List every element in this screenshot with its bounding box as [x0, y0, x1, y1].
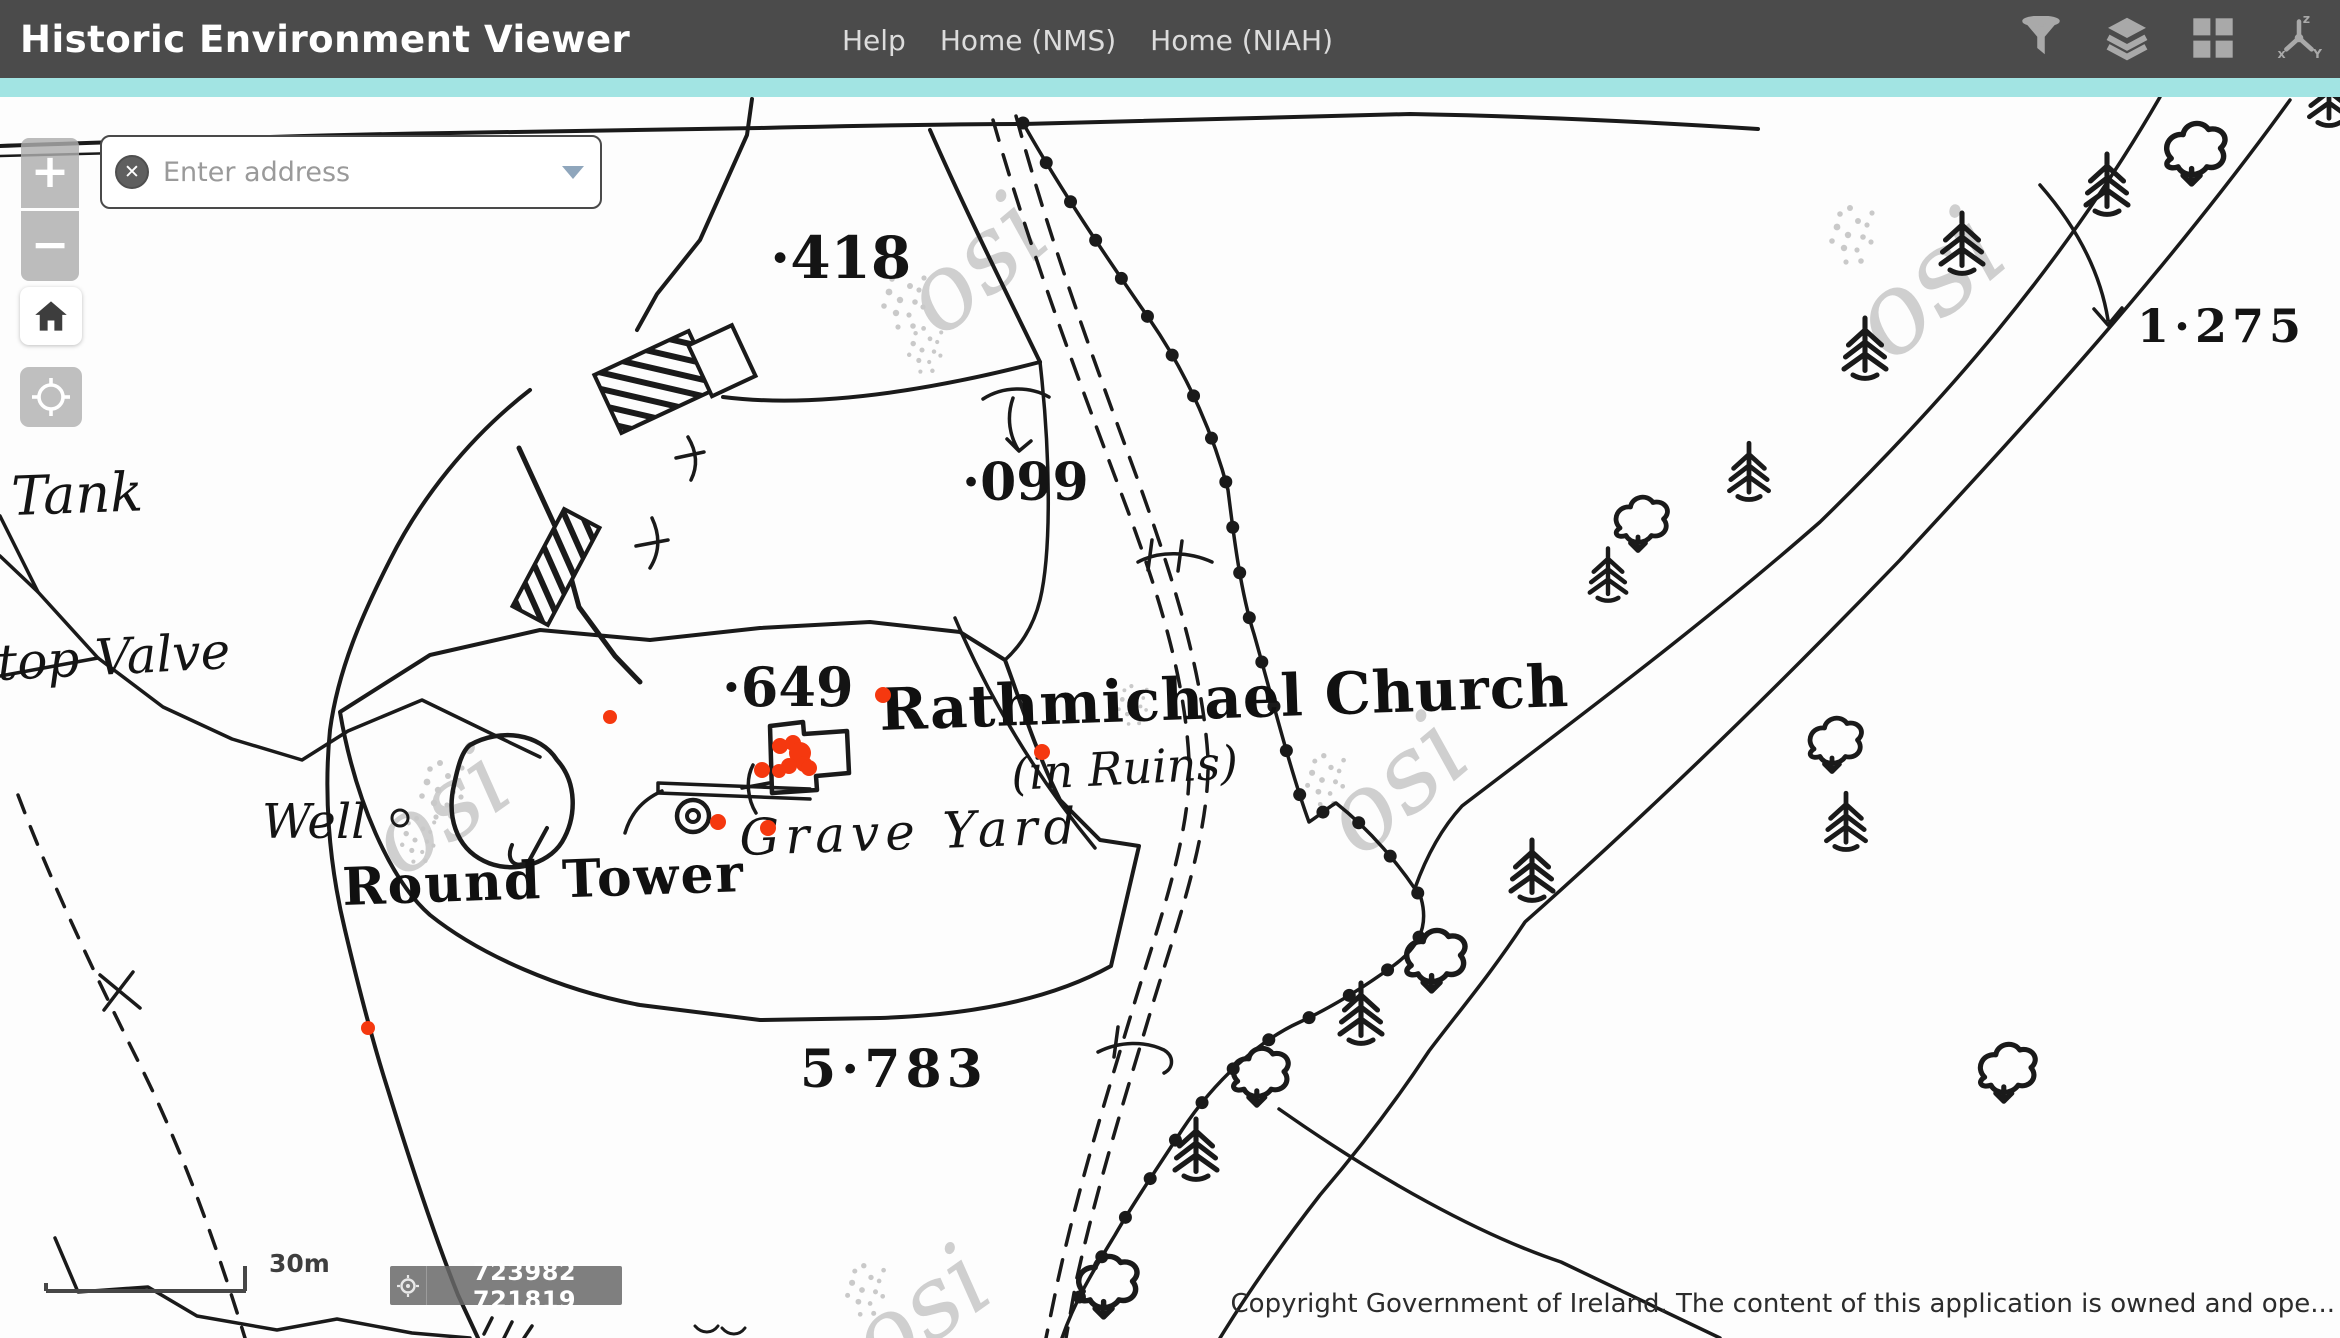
- coordinate-readout: 723982 721819: [390, 1266, 622, 1305]
- search-input[interactable]: Enter address: [163, 157, 562, 188]
- historic-environment-viewer: { "header": { "title": "Historic Environ…: [0, 0, 2340, 1338]
- label-tank: Tank: [10, 460, 144, 528]
- address-search: ✕ Enter address: [100, 135, 602, 209]
- search-dropdown-icon[interactable]: [562, 166, 584, 179]
- coordinate-value: 723982 721819: [427, 1258, 622, 1314]
- svg-text:z: z: [2303, 14, 2310, 26]
- toolbar: zxY: [2018, 12, 2322, 64]
- app-title: Historic Environment Viewer: [20, 18, 630, 61]
- accent-bar: [0, 78, 2340, 97]
- monument-marker[interactable]: [772, 764, 786, 778]
- clear-search-button[interactable]: ✕: [115, 155, 149, 189]
- svg-text:osi: osi: [827, 1222, 1012, 1338]
- label-spot-649: ·649: [722, 655, 854, 719]
- main-nav: Help Home (NMS) Home (NIAH): [842, 24, 1333, 57]
- coordinates-axis-icon[interactable]: zxY: [2276, 14, 2322, 62]
- label-grave-yard: Grave Yard: [738, 797, 1082, 867]
- copyright-notice: Copyright Government of Ireland. The con…: [1231, 1289, 2335, 1319]
- svg-text:x: x: [2278, 46, 2286, 61]
- label-well: Well: [262, 794, 367, 850]
- monument-marker[interactable]: [710, 814, 726, 830]
- target-icon: [390, 1266, 427, 1305]
- layers-icon[interactable]: [2104, 14, 2150, 62]
- monument-marker[interactable]: [754, 762, 770, 778]
- monument-marker[interactable]: [875, 687, 891, 703]
- app-header: Historic Environment Viewer Help Home (N…: [0, 0, 2340, 78]
- map-canvas[interactable]: osi osi osi osi osi: [0, 97, 2340, 1338]
- geolocate-button[interactable]: [20, 367, 82, 427]
- zoom-in-button[interactable]: +: [21, 138, 79, 208]
- filter-icon[interactable]: [2018, 14, 2064, 62]
- monument-marker[interactable]: [760, 820, 776, 836]
- historic-map-layer: osi osi osi osi osi: [0, 97, 2340, 1338]
- svg-text:Y: Y: [2312, 46, 2322, 61]
- label-spot-418: ·418: [770, 224, 911, 292]
- label-area-5783: 5·783: [800, 1039, 988, 1100]
- label-area-1275: 1·275: [2137, 299, 2306, 353]
- nav-home-niah[interactable]: Home (NIAH): [1150, 24, 1333, 57]
- nav-help[interactable]: Help: [842, 24, 906, 57]
- nav-home-nms[interactable]: Home (NMS): [940, 24, 1116, 57]
- monument-marker[interactable]: [603, 710, 617, 724]
- monument-marker[interactable]: [361, 1021, 375, 1035]
- label-round-tower: Round Tower: [341, 843, 746, 918]
- monument-marker[interactable]: [1034, 744, 1050, 760]
- label-spot-099: ·099: [962, 452, 1089, 513]
- home-icon: [33, 299, 69, 333]
- monument-marker[interactable]: [801, 760, 817, 776]
- label-rathmichael-church: Rathmichael Church: [878, 652, 1570, 744]
- home-extent-button[interactable]: [20, 287, 82, 345]
- label-top-valve: top Valve: [0, 622, 232, 692]
- basemap-grid-icon[interactable]: [2190, 14, 2236, 62]
- zoom-out-button[interactable]: −: [21, 211, 79, 281]
- svg-text:osi: osi: [1824, 183, 2031, 386]
- crosshair-icon: [30, 376, 72, 418]
- scalebar-label: 30m: [269, 1249, 330, 1278]
